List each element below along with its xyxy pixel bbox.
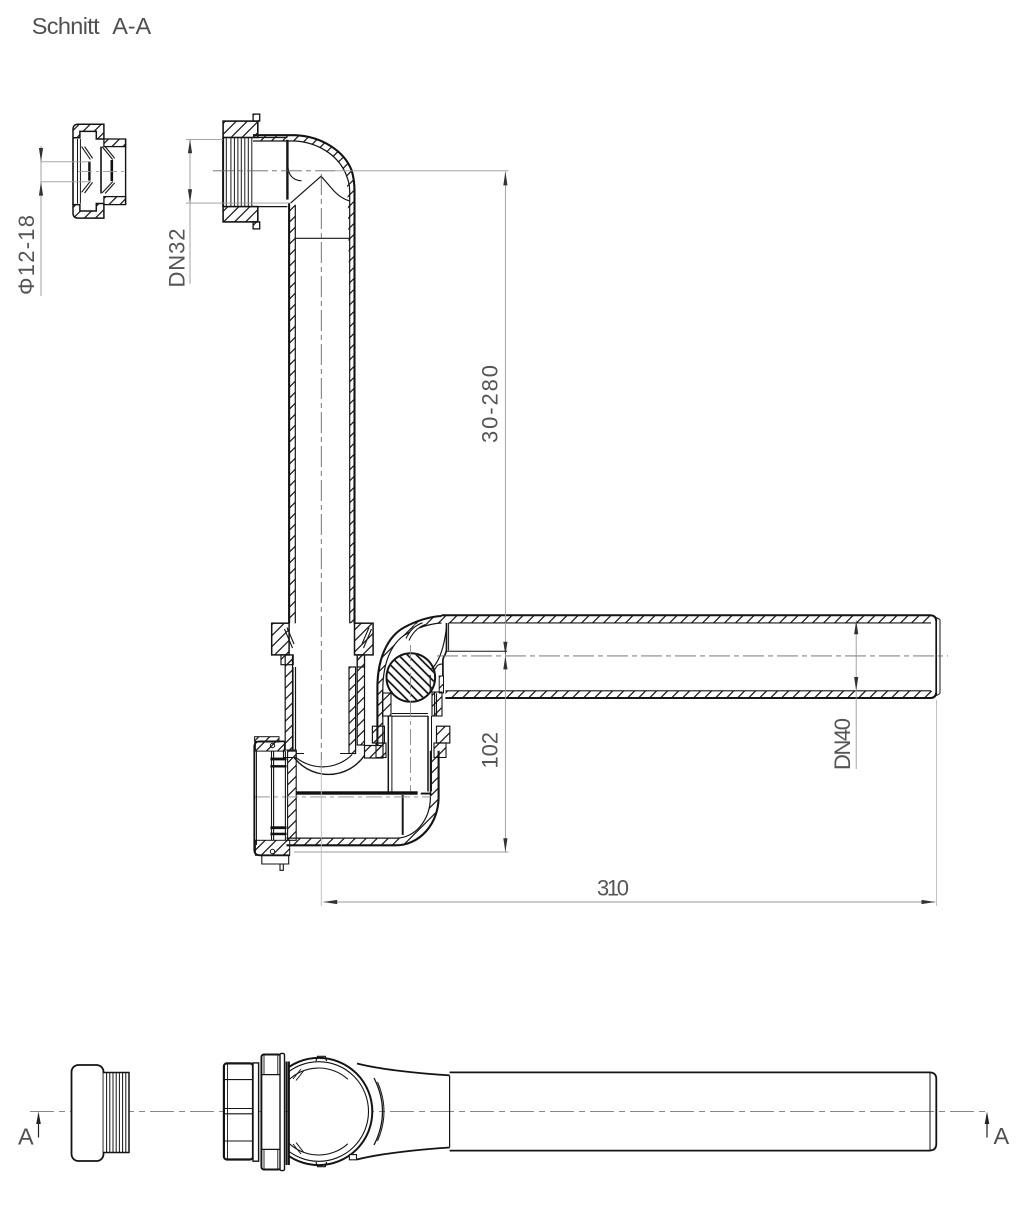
svg-text:310: 310 [597,876,629,901]
svg-text:DN40: DN40 [830,718,855,770]
svg-text:A: A [994,1123,1010,1149]
svg-text:A-A: A-A [112,13,151,39]
svg-text:30-280: 30-280 [478,365,503,443]
svg-text:DN32: DN32 [165,229,190,288]
svg-text:A: A [18,1124,34,1150]
svg-text:102: 102 [478,732,503,769]
svg-text:Φ12-18: Φ12-18 [14,215,39,295]
svg-text:Schnitt: Schnitt [32,13,100,39]
